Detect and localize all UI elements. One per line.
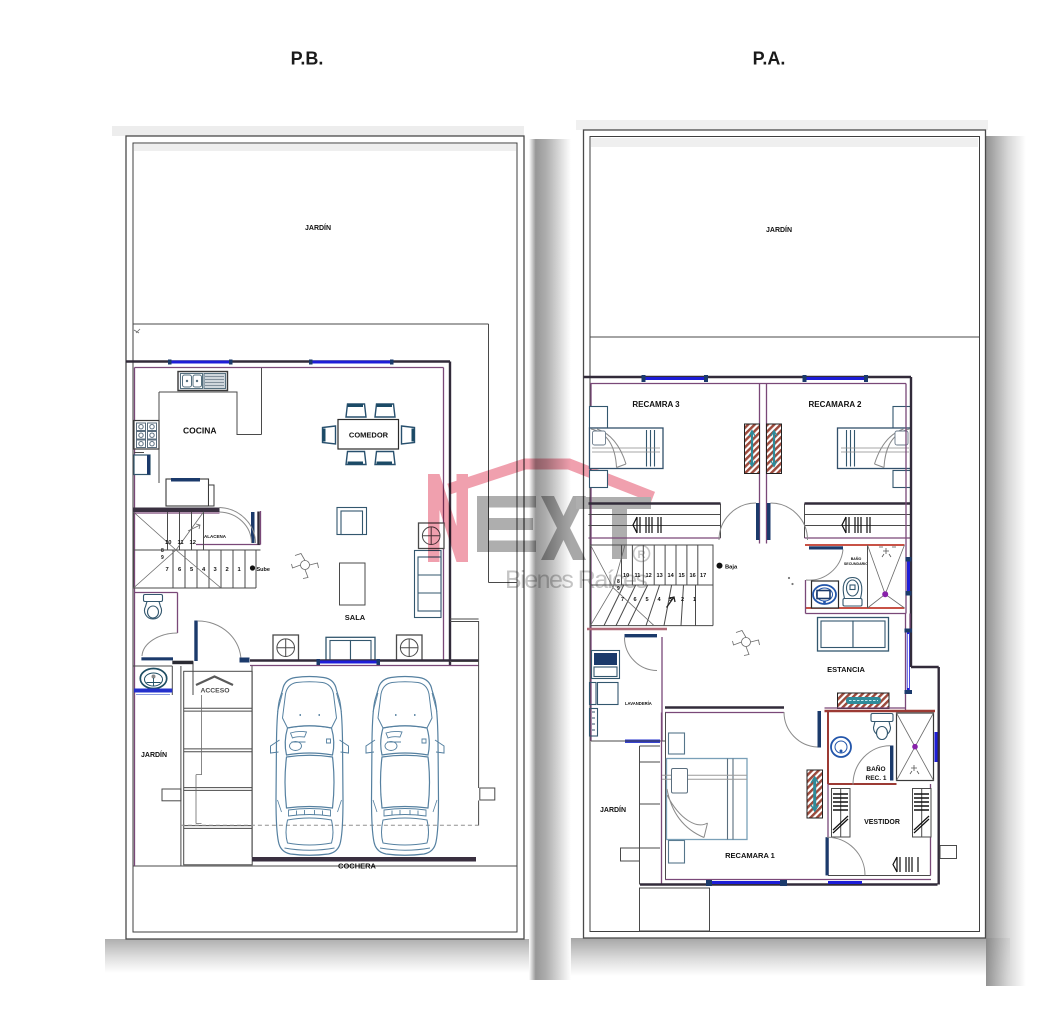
svg-text:COMEDOR: COMEDOR xyxy=(349,431,389,440)
svg-text:REC. 1: REC. 1 xyxy=(866,775,887,782)
svg-text:9: 9 xyxy=(161,555,164,561)
svg-text:VESTIDOR: VESTIDOR xyxy=(864,819,900,826)
svg-text:11: 11 xyxy=(178,540,185,546)
svg-text:Sube: Sube xyxy=(257,567,270,573)
svg-text:SECUNDARIO: SECUNDARIO xyxy=(844,562,868,566)
svg-text:11: 11 xyxy=(635,573,641,579)
svg-text:15: 15 xyxy=(679,573,685,579)
svg-text:R: R xyxy=(638,549,646,561)
svg-text:7: 7 xyxy=(166,567,169,573)
svg-text:BAÑO: BAÑO xyxy=(851,556,862,561)
svg-text:JARDÍN: JARDÍN xyxy=(141,750,167,759)
svg-text:RECAMARA 2: RECAMARA 2 xyxy=(808,400,862,409)
svg-text:2: 2 xyxy=(226,567,229,573)
svg-text:ESTANCIA: ESTANCIA xyxy=(827,665,865,674)
svg-text:9: 9 xyxy=(617,586,620,592)
svg-text:P.B.: P.B. xyxy=(291,49,324,69)
svg-text:17: 17 xyxy=(700,573,706,579)
svg-text:7: 7 xyxy=(621,597,624,603)
svg-text:Baja: Baja xyxy=(725,565,738,571)
svg-text:ALACENA: ALACENA xyxy=(204,534,227,539)
svg-text:1: 1 xyxy=(693,597,696,603)
svg-text:ACCESO: ACCESO xyxy=(200,688,229,695)
svg-text:P.A.: P.A. xyxy=(753,49,786,69)
svg-text:5: 5 xyxy=(646,597,649,603)
svg-text:SALA: SALA xyxy=(345,613,366,622)
svg-text:13: 13 xyxy=(657,573,663,579)
svg-text:JARDÍN: JARDÍN xyxy=(305,223,331,232)
svg-text:JARDÍN: JARDÍN xyxy=(766,225,792,234)
svg-text:12: 12 xyxy=(646,573,652,579)
svg-text:COCHERA: COCHERA xyxy=(338,862,377,871)
svg-text:RECAMARA 1: RECAMARA 1 xyxy=(725,851,775,860)
svg-text:14: 14 xyxy=(668,573,675,579)
svg-text:10: 10 xyxy=(165,540,171,546)
svg-text:JARDÍN: JARDÍN xyxy=(600,805,626,814)
svg-text:Bienes Raíces: Bienes Raíces xyxy=(505,566,648,594)
svg-text:8: 8 xyxy=(617,579,620,585)
svg-text:6: 6 xyxy=(634,597,637,603)
svg-text:12: 12 xyxy=(190,540,196,546)
svg-text:16: 16 xyxy=(690,573,696,579)
svg-text:8: 8 xyxy=(161,548,164,554)
svg-text:2: 2 xyxy=(681,597,684,603)
svg-text:RECAMRA 3: RECAMRA 3 xyxy=(632,400,680,409)
svg-text:COCINA: COCINA xyxy=(183,426,217,436)
svg-text:LAVANDERÍA: LAVANDERÍA xyxy=(625,701,652,706)
svg-text:10: 10 xyxy=(623,573,629,579)
svg-text:BAÑO: BAÑO xyxy=(866,764,885,773)
